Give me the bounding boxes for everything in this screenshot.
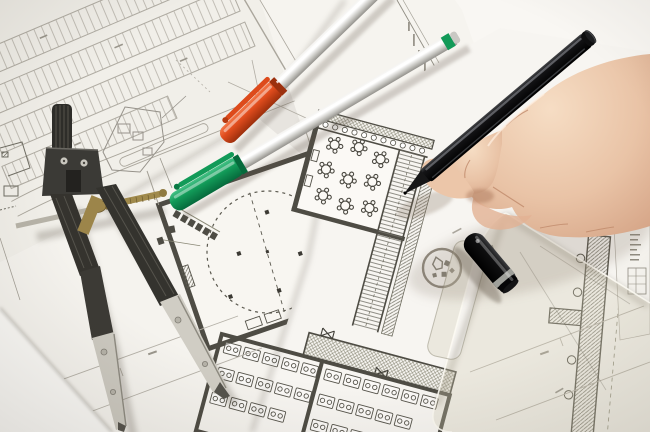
photo-architect-blueprints <box>0 0 650 432</box>
